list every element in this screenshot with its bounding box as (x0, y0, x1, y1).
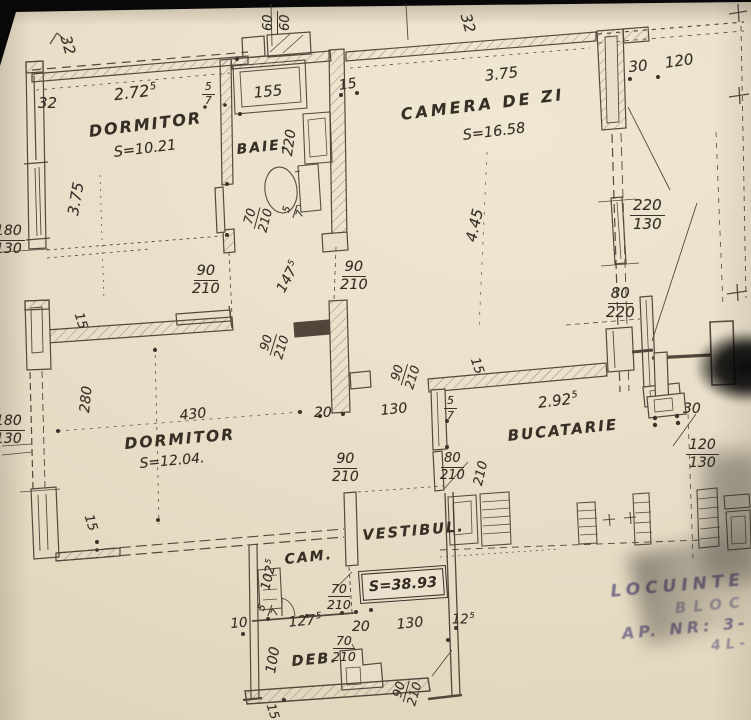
dim-10-deb: 10 (230, 617, 248, 632)
dim-32-rot-left: 32 (58, 34, 78, 56)
dim-80-220: 80220 (606, 286, 635, 321)
dim-375-camera: 3.75 (484, 65, 519, 84)
dim-180-130-top: 180130 (0, 224, 25, 256)
dim-120-top: 120 (664, 52, 694, 71)
denominator: 210 (340, 277, 368, 293)
dim-20-deb: 20 (352, 620, 370, 634)
numerator: 60 (262, 11, 278, 34)
numerator: 90 (342, 260, 366, 277)
dim-180-130-bottom: 180130 (0, 414, 25, 446)
dim-90-210-a: 90210 (192, 264, 220, 297)
dim-90-210-b: 90210 (340, 260, 368, 293)
denominator: 7 (269, 607, 282, 617)
numerator: 5 (202, 82, 215, 95)
denominator: 220 (606, 304, 635, 321)
dim-15-baie: 15 (338, 77, 358, 93)
denominator: 210 (332, 649, 356, 663)
dim-20-hall: 20 (314, 406, 332, 420)
dim-5-7-baie: 57 (202, 82, 215, 107)
denominator: 7 (294, 209, 307, 219)
denominator: 7 (447, 409, 454, 422)
dim-130-hall: 130 (380, 401, 408, 418)
dim-60-60-shaft: 6060 (262, 11, 292, 34)
scanned-floor-plan-photo: DORMITOR S=10.21 BAIE. CAMERA DE ZI S=16… (0, 0, 751, 720)
dim-30-bucatarie: 30 (683, 402, 701, 416)
numerator: 90 (333, 452, 357, 469)
dim-220-130-window: 220130 (630, 198, 665, 233)
numerator: 180 (0, 224, 25, 241)
dim-5-7-bucatarie: 57 (444, 395, 457, 421)
numerator: 220 (630, 198, 665, 216)
denominator: 210 (327, 597, 351, 611)
denominator: 130 (0, 431, 22, 447)
numerator: 80 (608, 286, 633, 304)
dim-70-210-cam: 70210 (327, 582, 351, 611)
denominator: 210 (192, 281, 220, 297)
total-area-box: S=38.93 (361, 568, 445, 601)
dim-430: 430 (179, 406, 207, 423)
dim-127: 1275 (288, 612, 322, 629)
denominator: 210 (440, 468, 465, 483)
dim-32-left: 32 (38, 96, 57, 111)
numerator: 90 (194, 264, 218, 281)
dim-130-deb: 130 (396, 615, 424, 632)
denominator: 210 (332, 469, 359, 485)
numerator: 70 (333, 634, 355, 649)
denominator: 130 (0, 241, 22, 257)
dim-280: 280 (78, 385, 95, 413)
dim-15-deb: 15 (264, 702, 281, 720)
dim-70-210-deb: 70210 (332, 634, 356, 663)
dim-80-210: 80210 (440, 452, 465, 482)
numerator: 70 (328, 582, 350, 597)
dim-12: 125 (452, 612, 475, 626)
denominator: 130 (633, 216, 662, 233)
numerator: 180 (0, 414, 25, 431)
dim-32-rot-mid: 32 (458, 12, 478, 34)
dim-220-baie: 220 (281, 129, 299, 157)
fixtures (233, 60, 751, 616)
numerator: 5 (444, 395, 457, 409)
dim-90-210-d: 90210 (332, 452, 359, 484)
numerator: 80 (441, 452, 464, 468)
total-area-value: S=38.93 (368, 574, 437, 595)
dim-155: 155 (253, 83, 283, 101)
denominator: 60 (278, 14, 293, 31)
scan-shadow-right (702, 452, 751, 582)
denominator: 7 (205, 95, 212, 107)
dim-30-top: 30 (628, 58, 648, 75)
